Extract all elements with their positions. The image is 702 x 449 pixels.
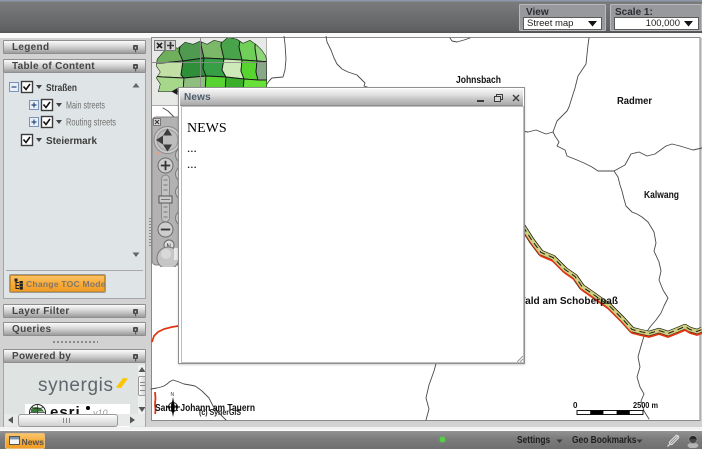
svg-text:(c) SynerGIS: (c) SynerGIS <box>199 408 242 417</box>
svg-text:Radmer: Radmer <box>617 96 652 107</box>
svg-text:2500 m: 2500 m <box>633 401 658 410</box>
svg-text:Straßen: Straßen <box>46 83 77 94</box>
svg-text:0: 0 <box>573 401 578 410</box>
svg-text:Johnsbach: Johnsbach <box>456 75 501 86</box>
svg-text:N: N <box>171 392 175 398</box>
svg-text:Wald am Schoberpaß: Wald am Schoberpaß <box>516 296 618 307</box>
svg-text:Kalwang: Kalwang <box>644 190 679 201</box>
svg-text:Steiermark: Steiermark <box>46 136 97 147</box>
svg-text:Routing streets: Routing streets <box>66 118 116 129</box>
svg-text:Main streets: Main streets <box>66 101 105 112</box>
